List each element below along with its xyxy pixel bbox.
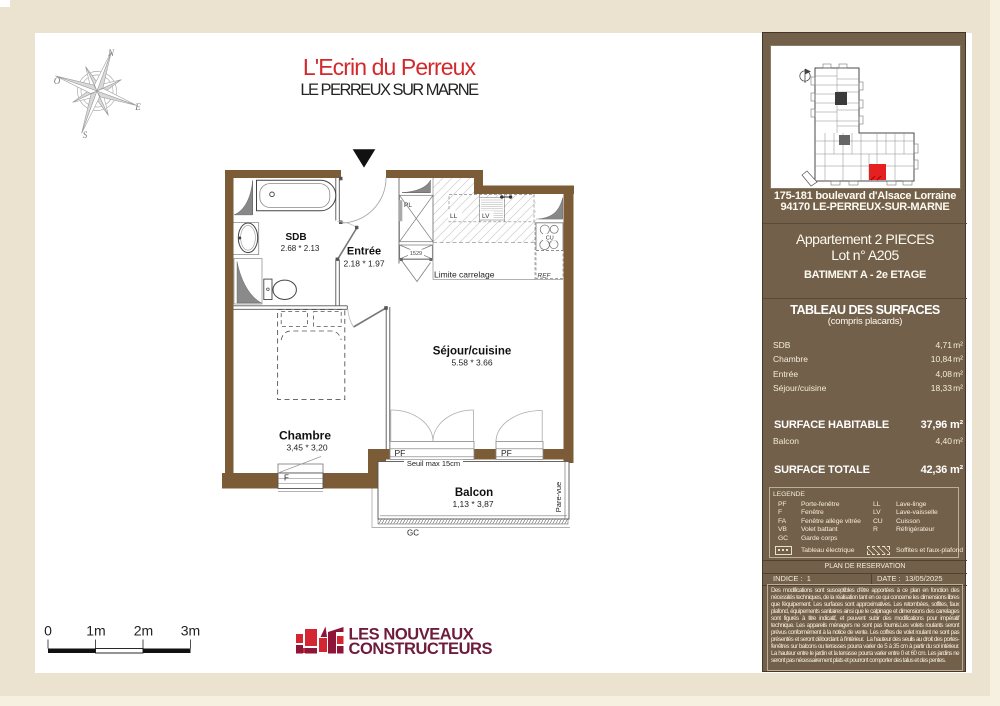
svg-text:3,45 * 3,20: 3,45 * 3,20 bbox=[286, 443, 327, 453]
svg-text:REF: REF bbox=[538, 273, 552, 280]
svg-text:SDB: SDB bbox=[285, 232, 306, 243]
svg-text:Limite carrelage: Limite carrelage bbox=[434, 270, 495, 280]
svg-text:GC: GC bbox=[407, 529, 419, 538]
svg-text:1529: 1529 bbox=[410, 251, 422, 257]
svg-text:Entrée: Entrée bbox=[347, 246, 381, 258]
svg-text:0: 0 bbox=[44, 623, 52, 639]
svg-text:Seuil max 15cm: Seuil max 15cm bbox=[407, 459, 460, 468]
svg-text:5.58 * 3.66: 5.58 * 3.66 bbox=[451, 358, 492, 368]
svg-text:CU: CU bbox=[546, 235, 554, 241]
svg-text:Séjour/cuisine: Séjour/cuisine bbox=[433, 346, 512, 358]
svg-text:2m: 2m bbox=[134, 623, 153, 639]
svg-text:N: N bbox=[107, 48, 115, 58]
svg-text:2.68 * 2.13: 2.68 * 2.13 bbox=[281, 244, 320, 253]
svg-text:2.18 * 1.97: 2.18 * 1.97 bbox=[343, 259, 384, 269]
svg-text:F: F bbox=[284, 474, 289, 483]
svg-text:Pare-vue: Pare-vue bbox=[554, 482, 563, 512]
svg-text:LL: LL bbox=[450, 213, 458, 220]
svg-text:3m: 3m bbox=[181, 623, 200, 639]
svg-text:S: S bbox=[83, 130, 88, 140]
svg-text:PF: PF bbox=[501, 448, 512, 458]
svg-text:PF: PF bbox=[395, 448, 406, 458]
svg-text:Chambre: Chambre bbox=[279, 429, 331, 443]
svg-text:LV: LV bbox=[482, 213, 490, 220]
svg-text:PL: PL bbox=[404, 202, 412, 209]
svg-text:CONSTRUCTEURS: CONSTRUCTEURS bbox=[349, 640, 493, 658]
svg-text:1m: 1m bbox=[86, 623, 105, 639]
svg-text:Balcon: Balcon bbox=[455, 487, 493, 499]
svg-text:E: E bbox=[134, 102, 141, 112]
svg-text:O: O bbox=[54, 76, 61, 86]
svg-text:1,13 * 3,87: 1,13 * 3,87 bbox=[452, 499, 493, 509]
